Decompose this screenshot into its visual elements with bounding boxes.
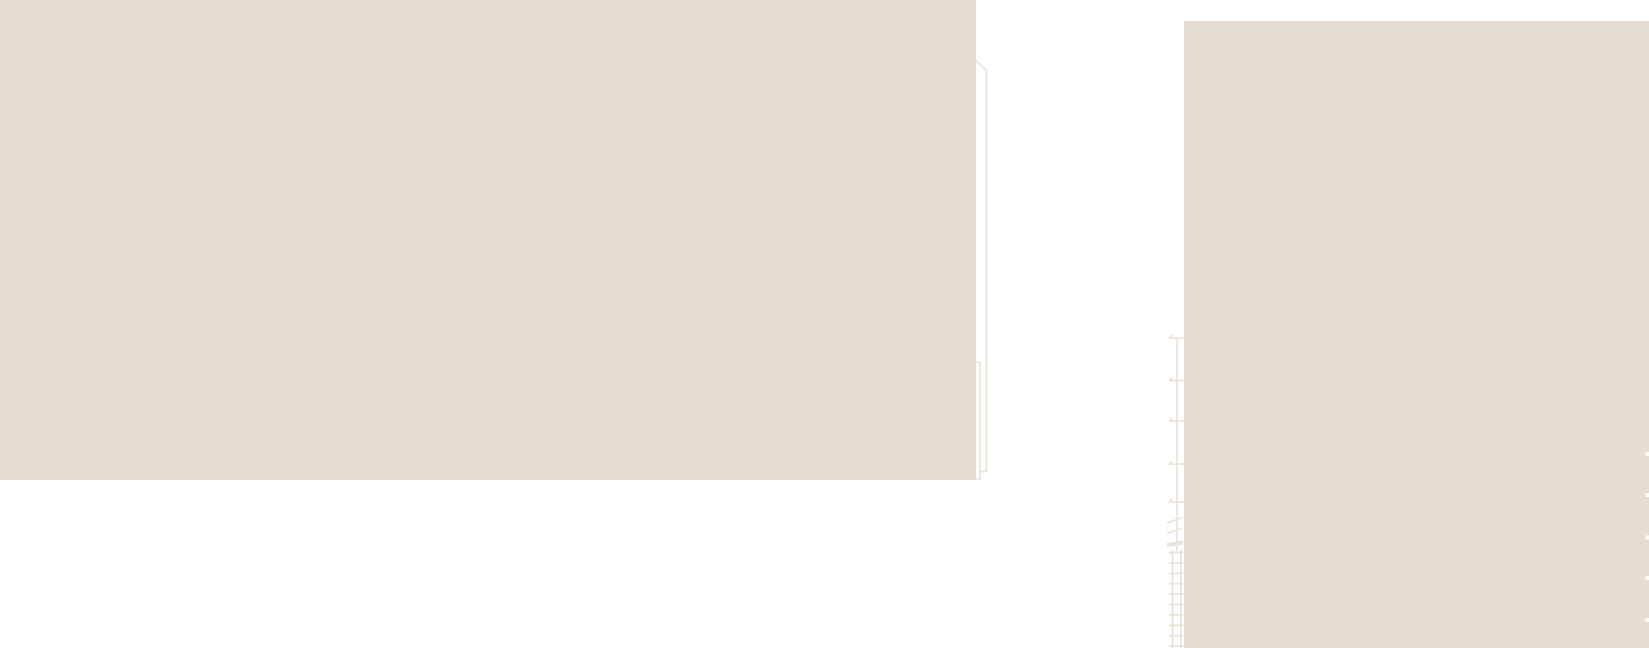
facade-course-tick-1	[1646, 493, 1649, 497]
scribble-diagonal-1	[1167, 518, 1183, 524]
drawing-fragment	[0, 0, 1649, 648]
facade-course-tick-4	[1646, 618, 1649, 622]
scribble-diagonal-2	[1167, 528, 1183, 534]
right-wall-block	[1184, 21, 1649, 648]
facade-course-tick-2	[1646, 536, 1649, 540]
roof-eave-diagonal	[976, 61, 987, 71]
drawing-canvas	[0, 0, 1649, 648]
scribble-bar	[1167, 543, 1183, 546]
facade-course-tick-0	[1646, 452, 1649, 456]
facade-course-tick-3	[1646, 576, 1649, 580]
left-wall-block	[0, 0, 976, 480]
